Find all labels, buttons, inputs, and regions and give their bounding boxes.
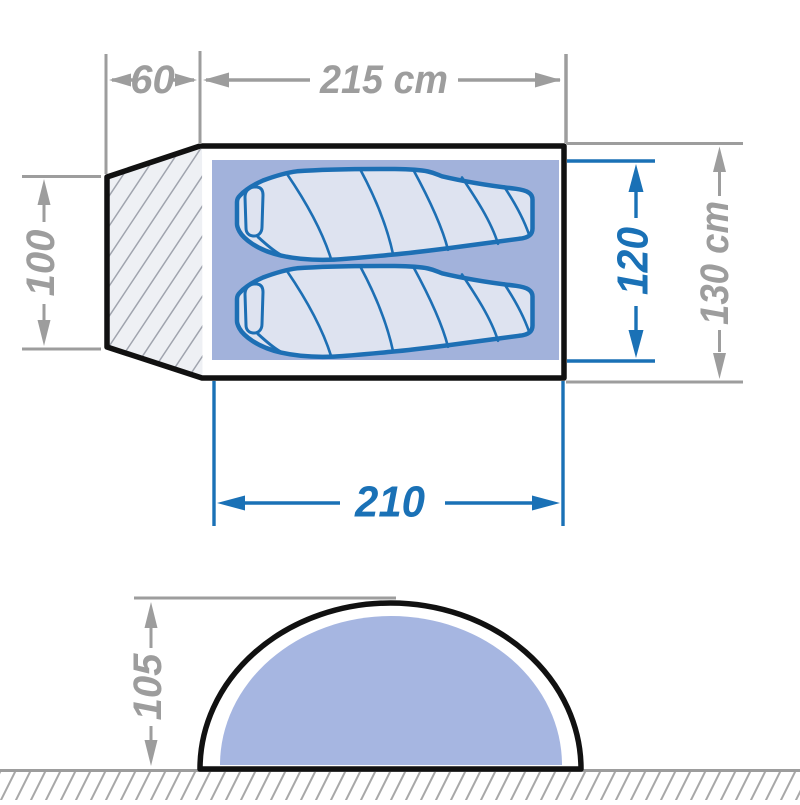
- svg-text:105: 105: [126, 653, 170, 720]
- svg-text:215 cm: 215 cm: [319, 58, 448, 102]
- svg-text:100: 100: [19, 230, 63, 297]
- svg-text:130 cm: 130 cm: [693, 201, 737, 325]
- svg-text:120: 120: [609, 227, 658, 295]
- svg-text:60: 60: [130, 58, 175, 102]
- svg-text:210: 210: [354, 478, 425, 527]
